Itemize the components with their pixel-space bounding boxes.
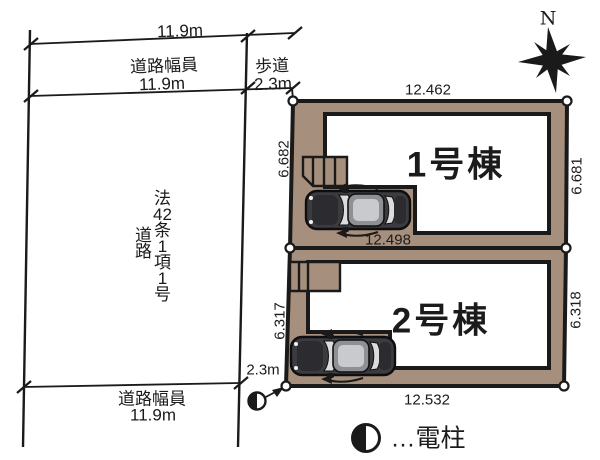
north-label: N (540, 10, 557, 29)
compass-rose-icon (518, 27, 586, 93)
road-width-caption: 道路幅員 (130, 56, 199, 75)
road-width-value: 11.9m (139, 75, 186, 94)
sidewalk-value: 2.3m (254, 75, 292, 93)
car-2-icon (291, 334, 395, 378)
lot1-left-dimension: 6.682 (277, 140, 292, 178)
legend-label: …電柱 (390, 427, 465, 452)
lot1-right-dimension: 6.681 (570, 157, 585, 195)
building-2-label: 2号棟 (392, 304, 490, 339)
lot2-bottom-dimension: 12.532 (404, 393, 450, 408)
lot1-top-dimension: 12.462 (405, 83, 451, 98)
car-1-icon (306, 188, 410, 232)
utility-pole-icon (249, 393, 266, 410)
utility-pole-legend-icon (353, 425, 380, 452)
lot2-right-dimension: 6.318 (569, 291, 584, 329)
building-1-label: 1号棟 (407, 148, 505, 183)
sidewalk-caption: 歩道 (255, 57, 290, 75)
lot2-left-dimension: 6.317 (273, 302, 288, 340)
lot1-bottom-dimension: 12.498 (365, 233, 411, 248)
road-legal-suffix: 道 路 (135, 228, 152, 303)
bottom-road-width-value: 11.9m (130, 407, 176, 424)
road-legal-main: 法 42 条 1 項 1 号 (153, 191, 172, 303)
entrance-steps-1 (303, 157, 347, 186)
bottom-sidewalk-value: 2.3m (246, 363, 279, 378)
road-top-width-label: 11.9m (157, 22, 204, 41)
site-plan: 11.9m 道路幅員 11.9m 歩道 2.3m N 12.462 6.682 … (0, 0, 600, 460)
site-plan-drawing (0, 0, 600, 460)
road-legal-designation: 道 路 法 42 条 1 項 1 号 (135, 191, 172, 303)
entrance-steps-2 (290, 262, 340, 291)
